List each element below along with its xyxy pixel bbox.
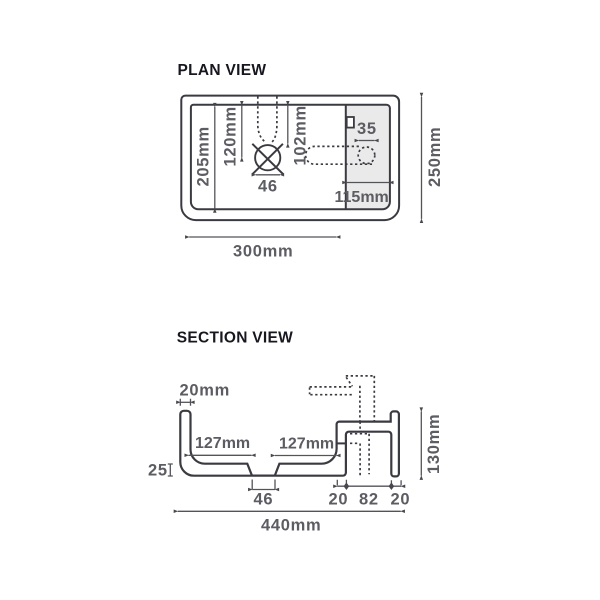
svg-text:46: 46 [254,491,274,509]
svg-text:205mm: 205mm [195,126,213,186]
svg-text:25: 25 [148,462,168,480]
svg-text:20mm: 20mm [180,382,231,400]
svg-text:PLAN VIEW: PLAN VIEW [178,62,267,79]
svg-text:SECTION VIEW: SECTION VIEW [177,330,293,347]
svg-text:82: 82 [359,491,379,509]
svg-text:250mm: 250mm [426,127,444,187]
svg-text:120mm: 120mm [222,106,240,166]
svg-text:102mm: 102mm [292,105,310,165]
svg-text:115mm: 115mm [335,189,389,206]
svg-text:440mm: 440mm [261,517,321,535]
svg-text:300mm: 300mm [233,243,293,261]
svg-text:127mm: 127mm [279,436,334,453]
svg-text:130mm: 130mm [425,414,443,474]
svg-text:46: 46 [258,178,278,196]
svg-text:35: 35 [357,120,377,138]
svg-text:20: 20 [391,491,411,509]
svg-text:127mm: 127mm [195,435,250,452]
svg-text:20: 20 [329,491,349,509]
